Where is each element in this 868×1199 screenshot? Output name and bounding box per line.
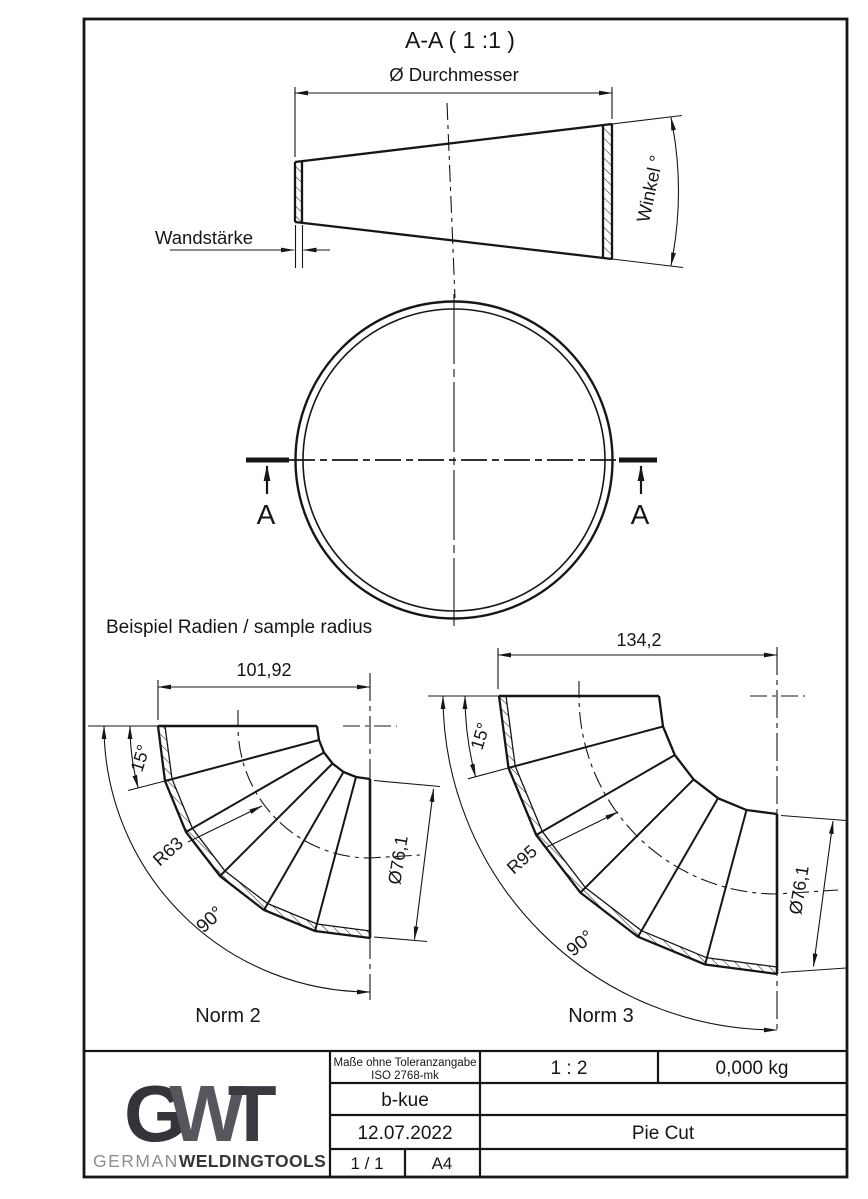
cone-section-view: A-A ( 1 :1 ) Ø Durchmesser Winkel ° Wand… <box>155 27 683 298</box>
norm2-diameter-dimension-line <box>415 789 434 940</box>
wall-thickness-extension-lines <box>296 225 303 268</box>
paper-format: A4 <box>432 1154 453 1173</box>
norm3-diameter-dimension-line <box>814 821 834 967</box>
circle-plan-view: A A <box>246 294 657 626</box>
norm2-pie-cut: 101,92 15° 90° R63 Ø76,1 Norm 2 <box>88 660 440 1027</box>
tolerance-note-line1: Maße ohne Toleranzangabe <box>333 1057 476 1069</box>
tolerance-note-line2: ISO 2768-mk <box>371 1070 439 1082</box>
norm3-width-value: 134,2 <box>616 630 661 650</box>
right-wall-hatch <box>603 124 612 259</box>
brand-light-part: GERMAN <box>93 1151 179 1171</box>
section-letter-right: A <box>631 499 650 530</box>
norm3-segment-angle-value: 15° <box>467 720 494 752</box>
cone-wall-edges <box>295 124 612 259</box>
norm3-pipe-diameter-value: Ø76,1 <box>785 864 812 916</box>
date-value: 12.07.2022 <box>357 1123 452 1144</box>
norm3-extension-lines <box>428 648 509 779</box>
norm2-extension-lines <box>88 680 165 791</box>
drawing-frame <box>84 19 847 1177</box>
norm2-pipe-diameter-value: Ø76,1 <box>384 834 411 886</box>
norm3-name: Norm 3 <box>568 1005 634 1027</box>
title-block: Maße ohne Toleranzangabe ISO 2768-mk b-k… <box>84 1051 847 1177</box>
angle-label: Winkel ° <box>632 153 667 224</box>
gwt-logo: GWT GERMANWELDINGTOOLS <box>93 1069 326 1171</box>
norm2-name: Norm 2 <box>195 1005 261 1027</box>
diameter-dimension-label: Ø Durchmesser <box>389 64 519 85</box>
cone-center-line <box>447 103 455 298</box>
section-letter-left: A <box>257 499 276 530</box>
norm2-radius-value: R63 <box>149 833 187 870</box>
norm3-radius-leader <box>545 812 618 848</box>
cone-outline <box>295 124 612 259</box>
scale-value: 1 : 2 <box>551 1058 588 1079</box>
angle-arc <box>671 118 679 266</box>
norm3-pie-cut: 134,2 15° 90° R95 Ø76,1 Norm 3 <box>428 630 846 1030</box>
norm3-sweep-angle-value: 90° <box>563 927 599 962</box>
diameter-extension-lines <box>295 87 612 157</box>
gwt-logo-letters: GWT <box>124 1069 277 1158</box>
logo-letter-t: T <box>228 1069 277 1158</box>
weight-value: 0,000 kg <box>716 1058 789 1079</box>
sheet-number: 1 / 1 <box>350 1154 383 1173</box>
creator-value: b-kue <box>381 1090 429 1111</box>
norm2-sweep-angle-value: 90° <box>193 902 228 937</box>
brand-bold-part: WELDINGTOOLS <box>179 1151 326 1171</box>
norm3-radius-value: R95 <box>503 841 541 878</box>
drawing-sheet: A-A ( 1 :1 ) Ø Durchmesser Winkel ° Wand… <box>0 0 868 1199</box>
wall-thickness-label: Wandstärke <box>155 227 253 248</box>
norm2-width-value: 101,92 <box>236 660 291 680</box>
sample-radius-heading: Beispiel Radien / sample radius <box>106 617 372 638</box>
technical-drawing-canvas: A-A ( 1 :1 ) Ø Durchmesser Winkel ° Wand… <box>0 0 868 1199</box>
brand-wordmark: GERMANWELDINGTOOLS <box>93 1151 326 1171</box>
section-view-title: A-A ( 1 :1 ) <box>405 27 515 53</box>
part-name: Pie Cut <box>632 1123 695 1144</box>
